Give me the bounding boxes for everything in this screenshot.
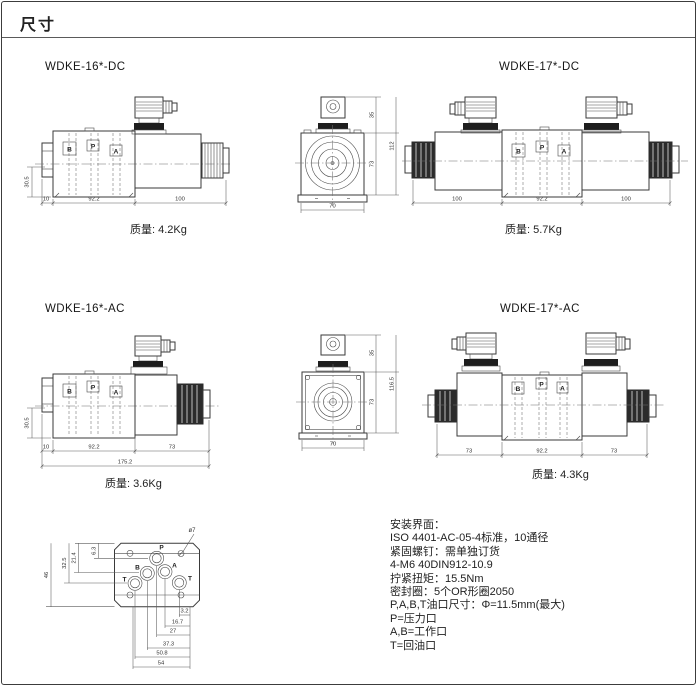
svg-text:100: 100 <box>452 197 462 203</box>
ac17-port-p: P <box>539 382 544 389</box>
svg-text:70: 70 <box>329 204 335 210</box>
dc16-port-a: A <box>114 149 119 156</box>
note-line: 4-M6 40DIN912-10.9 <box>390 559 565 572</box>
svg-text:16.7: 16.7 <box>172 620 183 626</box>
dc16-port-p: P <box>91 144 96 151</box>
dc16-connector <box>132 97 177 134</box>
svg-text:92.2: 92.2 <box>536 449 547 455</box>
ac17-port-b: B <box>516 386 521 393</box>
ac16-front-view: 70 35 73 116.5 <box>296 335 399 451</box>
figure-title-ac16: WDKE-16*-AC <box>45 303 125 315</box>
title-divider <box>2 37 695 38</box>
dc16-side-view: B P A <box>25 97 232 206</box>
svg-text:73: 73 <box>611 449 617 455</box>
note-line: T=回油口 <box>390 640 565 653</box>
dc17-port-p: P <box>540 145 545 152</box>
note-line: ISO 4401-AC-05-4标准，10通径 <box>390 532 565 545</box>
note-line: P=压力口 <box>390 613 565 626</box>
svg-text:92.2: 92.2 <box>88 197 99 203</box>
figure-title-dc17: WDKE-17*-DC <box>499 61 579 73</box>
ac17-connector-left <box>452 333 500 371</box>
svg-text:27: 27 <box>170 629 176 635</box>
svg-text:100: 100 <box>175 197 185 203</box>
dc17-port-a: A <box>562 149 567 156</box>
svg-text:116.5: 116.5 <box>390 377 396 391</box>
svg-text:10: 10 <box>43 445 49 451</box>
svg-text:73: 73 <box>466 449 472 455</box>
svg-text:73: 73 <box>370 399 376 405</box>
svg-text:92.2: 92.2 <box>88 445 99 451</box>
svg-text:21.4: 21.4 <box>71 551 77 563</box>
ac17-connector-right <box>582 333 630 371</box>
svg-text:37.3: 37.3 <box>163 642 174 648</box>
svg-text:46: 46 <box>44 572 50 578</box>
dc17-connector-right <box>582 97 632 133</box>
mounting-port-p: P <box>159 545 164 552</box>
note-line: 安装界面： <box>390 519 565 532</box>
hole-diameter-label: ø7 <box>188 528 196 534</box>
mounting-port-a: A <box>172 563 177 570</box>
svg-text:50.8: 50.8 <box>156 651 167 657</box>
note-line: 拧紧扭矩：15.5Nm <box>390 573 565 586</box>
dc17-port-b: B <box>516 149 521 156</box>
note-line: A,B=工作口 <box>390 626 565 639</box>
ac16-port-a: A <box>114 390 119 397</box>
figure-title-dc16: WDKE-16*-DC <box>45 61 125 73</box>
dc16-dim-height: 30.5 <box>25 167 52 197</box>
ac16-port-p: P <box>91 385 96 392</box>
drawing-ac17: B P A 73 92.2 73 <box>400 320 695 495</box>
dc17-connector-left <box>450 97 500 133</box>
svg-text:10: 10 <box>43 197 49 203</box>
dc16-dims-bottom: 10 92.2 100 <box>41 179 228 206</box>
mounting-port-t1: T <box>123 577 127 584</box>
ac16-side-view: B P A 30.5 <box>25 336 221 469</box>
page-title: 尺寸 <box>20 11 56 35</box>
dc16-front-view: 70 35 73 112 <box>295 97 399 213</box>
dc16-front-dims: 70 35 73 112 <box>301 97 399 213</box>
svg-text:100: 100 <box>621 197 631 203</box>
drawing-dc17: B P A 100 92.2 100 <box>400 85 695 250</box>
note-line: P,A,B,T油口尺寸：Φ=11.5mm(最大) <box>390 599 565 612</box>
dc17-dims-bottom: 100 92.2 100 <box>412 180 672 206</box>
svg-text:6.3: 6.3 <box>91 547 97 555</box>
svg-text:73: 73 <box>370 161 376 167</box>
svg-text:35: 35 <box>370 350 376 356</box>
svg-text:112: 112 <box>390 141 396 150</box>
ac17-dims-bottom: 73 92.2 73 <box>436 424 649 458</box>
note-line: 密封圈：5个OR形圈2050 <box>390 586 565 599</box>
svg-text:73: 73 <box>169 445 175 451</box>
svg-text:92.2: 92.2 <box>536 197 547 203</box>
svg-text:70: 70 <box>330 442 336 448</box>
svg-text:30.5: 30.5 <box>25 176 31 187</box>
drawing-dc16: B P A <box>15 85 400 250</box>
dc17-valve: B P A 100 92.2 100 <box>402 97 688 206</box>
drawing-mounting-pattern: ø7 P B A T T 6.3 21.4 32.5 46 <box>30 512 240 686</box>
installation-notes: 安装界面： ISO 4401-AC-05-4标准，10通径 紧固螺钉：需单独订货… <box>390 519 565 653</box>
mounting-port-b: B <box>135 565 140 572</box>
mounting-plate: ø7 P B A T T <box>115 528 200 607</box>
mounting-port-t2: T <box>188 576 192 583</box>
drawing-ac16: B P A 30.5 <box>15 320 400 490</box>
svg-text:175.2: 175.2 <box>118 460 133 466</box>
svg-text:54: 54 <box>158 661 165 667</box>
svg-text:30.5: 30.5 <box>25 417 31 428</box>
ac16-port-b: B <box>67 389 72 396</box>
ac16-connector <box>131 336 175 374</box>
ac16-armature-nut <box>177 384 210 424</box>
svg-text:35: 35 <box>370 112 376 118</box>
dc16-port-b: B <box>67 147 72 154</box>
svg-text:3.2: 3.2 <box>180 609 188 615</box>
svg-text:32.5: 32.5 <box>62 558 68 569</box>
figure-title-ac17: WDKE-17*-AC <box>500 303 580 315</box>
mounting-bolt-hole-d7: ø7 <box>178 528 196 557</box>
note-line: 紧固螺钉：需单独订货 <box>390 546 565 559</box>
dc16-armature-nut <box>202 143 229 178</box>
ac17-port-a: A <box>560 386 565 393</box>
ac17-valve: B P A 73 92.2 73 <box>422 333 664 458</box>
